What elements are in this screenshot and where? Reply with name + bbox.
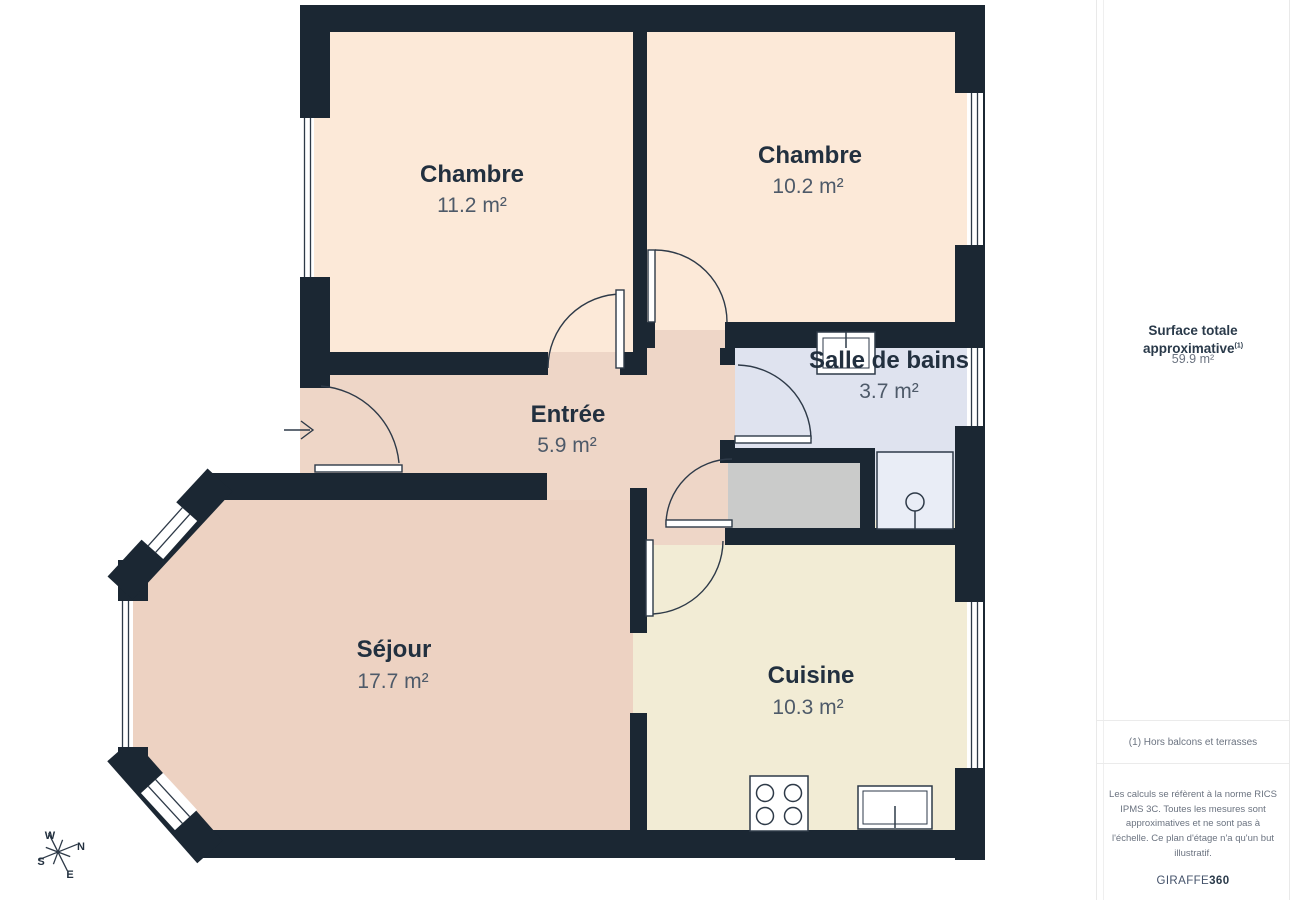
wall-closet-shower-divider [860, 448, 875, 538]
kitchen-sink-icon [858, 786, 932, 829]
total-area-title-superscript: (1) [1234, 342, 1243, 349]
stove-icon [750, 776, 808, 831]
logo-name: GIRAFFE [1156, 875, 1209, 887]
room-area: 11.2 m² [437, 194, 507, 217]
room-area: 10.3 m² [772, 696, 843, 719]
wall-bath-left-upper [720, 348, 735, 365]
footnote-section: (1) Hors balcons et terrasses [1097, 720, 1289, 764]
compass-west-label: W [45, 830, 56, 842]
floor-plan-svg: Chambre 11.2 m² Chambre 10.2 m² Salle de… [0, 0, 1090, 900]
window-sejour-left [118, 601, 149, 747]
room-area: 17.7 m² [357, 670, 428, 693]
wall-sejour-kitchen-upper [630, 488, 647, 633]
room-chambre-1-floor [315, 20, 645, 360]
disclaimer-text: Les calculs se réfèrent à la norme RICS … [1109, 788, 1277, 862]
wall-chambre1-bottom [300, 352, 548, 375]
wall-between-chambres [633, 32, 647, 352]
wall-chambre2-bottom-stub [647, 322, 655, 348]
total-area-section: Surface totale approximative(1) 59.9 m² [1097, 0, 1289, 720]
room-name: Séjour [357, 636, 432, 663]
room-sejour-floor [118, 478, 633, 858]
total-area-value: 59.9 m² [1105, 352, 1281, 366]
compass-south-label: S [37, 856, 44, 868]
wall-bottom [195, 830, 985, 858]
wall-sejour-top [210, 473, 547, 500]
compass-east-label: E [66, 869, 73, 881]
wall-sejour-kitchen-lower [630, 713, 647, 858]
info-panel: Surface totale approximative(1) 59.9 m² … [1096, 0, 1290, 900]
wall-bath-bottom [720, 448, 860, 463]
floor-plan: Chambre 11.2 m² Chambre 10.2 m² Salle de… [0, 0, 1090, 900]
compass-icon: W N S E [37, 830, 85, 881]
logo-suffix: 360 [1209, 875, 1229, 887]
footnote-text: (1) Hors balcons et terrasses [1129, 737, 1257, 748]
wall-top [300, 5, 985, 32]
room-name: Chambre [758, 142, 862, 169]
room-area: 3.7 m² [859, 380, 919, 403]
room-name: Chambre [420, 161, 524, 188]
window-chambre-1 [300, 118, 330, 277]
window-chambre-2 [951, 93, 983, 245]
room-area: 5.9 m² [537, 434, 597, 457]
shower-icon [877, 452, 953, 529]
floor-plan-page: Chambre 11.2 m² Chambre 10.2 m² Salle de… [0, 0, 1300, 900]
total-area-title-text: Surface totale approximative [1143, 323, 1238, 356]
wall-kitchen-top [725, 528, 955, 545]
room-name: Cuisine [768, 662, 855, 689]
closet-floor [728, 460, 860, 530]
compass-north-label: N [77, 841, 85, 853]
legal-section: Les calculs se réfèrent à la norme RICS … [1097, 763, 1289, 900]
room-name: Salle de bains [809, 347, 969, 374]
giraffe360-logo: GIRAFFE360 [1097, 875, 1289, 887]
room-name: Entrée [531, 401, 606, 428]
room-area: 10.2 m² [772, 175, 843, 198]
window-cuisine [951, 602, 983, 768]
